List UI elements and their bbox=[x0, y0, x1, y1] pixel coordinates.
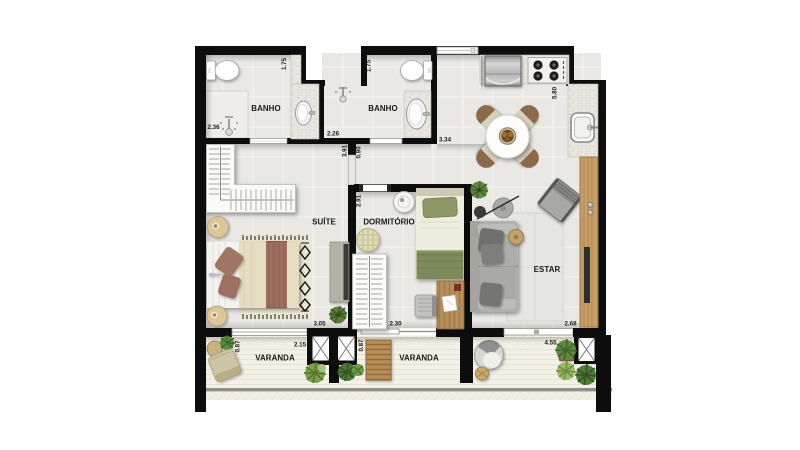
svg-text:BANHO: BANHO bbox=[368, 104, 397, 113]
svg-text:SUÍTE: SUÍTE bbox=[312, 218, 336, 227]
svg-text:3.91: 3.91 bbox=[342, 144, 349, 157]
svg-text:3.05: 3.05 bbox=[313, 321, 326, 328]
svg-text:2.68: 2.68 bbox=[564, 321, 577, 328]
svg-text:BANHO: BANHO bbox=[251, 104, 280, 113]
svg-text:VARANDA: VARANDA bbox=[399, 354, 439, 363]
svg-text:0.87: 0.87 bbox=[235, 340, 242, 353]
svg-text:0.90: 0.90 bbox=[356, 146, 363, 159]
svg-text:VARANDA: VARANDA bbox=[255, 354, 295, 363]
svg-text:2.36: 2.36 bbox=[207, 124, 220, 131]
svg-text:3.34: 3.34 bbox=[439, 137, 452, 144]
svg-text:ESTAR: ESTAR bbox=[534, 265, 561, 274]
svg-text:4.55: 4.55 bbox=[544, 340, 557, 347]
svg-text:2.30: 2.30 bbox=[389, 321, 402, 328]
svg-text:2.26: 2.26 bbox=[327, 131, 340, 138]
svg-text:1.75: 1.75 bbox=[281, 57, 288, 70]
svg-text:1.75: 1.75 bbox=[366, 59, 373, 72]
svg-text:DORMITÓRIO: DORMITÓRIO bbox=[363, 218, 414, 227]
svg-text:0.87: 0.87 bbox=[358, 339, 365, 352]
svg-text:2.15: 2.15 bbox=[294, 342, 307, 349]
svg-text:2.91: 2.91 bbox=[356, 194, 363, 207]
svg-text:5.80: 5.80 bbox=[552, 86, 559, 99]
